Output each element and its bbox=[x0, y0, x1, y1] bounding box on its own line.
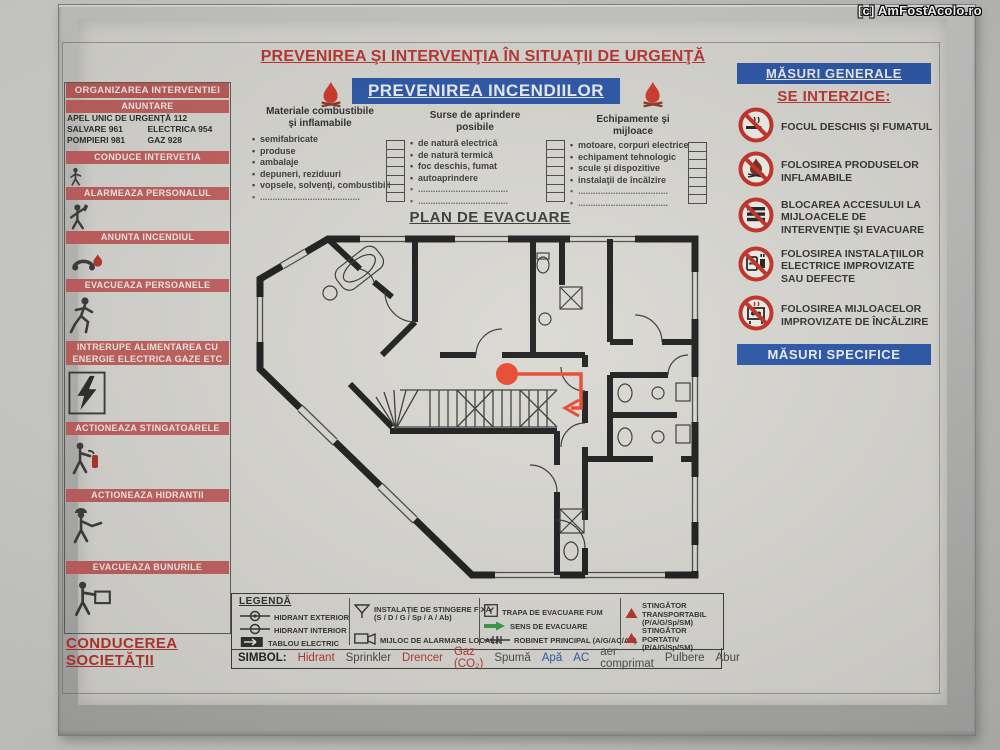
fire-prevention-banner: PREVENIREA INCENDIILOR bbox=[352, 78, 620, 104]
step-bar: EVACUEAZA BUNURILE MATERIALE bbox=[66, 561, 229, 574]
legend-divider bbox=[620, 598, 621, 645]
phone-salvare: SALVARE 961 bbox=[67, 124, 148, 135]
wheeled-extinguisher-icon bbox=[625, 606, 638, 624]
legend-box: LEGENDĂ HIDRANT EXTERIOR HIDRANT INTERIO… bbox=[231, 593, 724, 650]
fixed-extinguishing-icon bbox=[354, 604, 370, 624]
symbol-word: aer comprimat bbox=[600, 646, 654, 670]
symbol-word: Apă bbox=[542, 652, 562, 664]
step-bar: ALARMEAZA PERSONALUL bbox=[66, 187, 229, 200]
step-bar: INTRERUPE ALIMENTAREA CU ENERGIE ELECTRI… bbox=[66, 341, 229, 365]
legend-divider bbox=[349, 598, 350, 645]
phone-gaz: GAZ 928 bbox=[148, 135, 229, 146]
prohibition-item: FOLOSIREA PRODUSELOR INFLAMABILE bbox=[737, 150, 935, 193]
column-title-equipment: Echipamente şi mijloace bbox=[568, 114, 698, 138]
no-flammable-products-icon bbox=[737, 150, 775, 193]
you-are-here-marker bbox=[496, 363, 518, 385]
prohibition-heading: SE INTERZICE: bbox=[737, 88, 931, 105]
step-bar: CONDUCE INTERVETIA bbox=[66, 151, 229, 164]
evacuation-plan-title: PLAN DE EVACUARE bbox=[380, 209, 600, 226]
legend-title: LEGENDĂ bbox=[239, 596, 291, 607]
step-bar: ACTIONEAZA STINGATOARELE bbox=[66, 422, 229, 435]
symbol-word: AC bbox=[573, 652, 589, 664]
emergency-number: APEL UNIC DE URGENŢĂ 112 bbox=[67, 113, 228, 124]
prohibition-item: FOCUL DESCHIS ŞI FUMATUL bbox=[737, 106, 935, 149]
step-bar: ANUNTA INCENDIUL bbox=[66, 231, 229, 244]
flame-icon bbox=[640, 80, 666, 115]
checklist-cells bbox=[546, 140, 565, 202]
legend-item: STINGĂTOR TRANSPORTABIL (P/A/G/Sp/SM) bbox=[625, 602, 723, 628]
company-management-label: CONDUCEREA SOCIETĂŢII bbox=[66, 635, 246, 669]
sidebar-title: ORGANIZAREA INTERVENTIEI bbox=[66, 83, 229, 98]
prohibition-item: FOLOSIREA MIJLOACELOR IMPROVIZATE DE ÎNC… bbox=[737, 294, 935, 337]
no-open-fire-smoking-icon bbox=[737, 106, 775, 149]
legend-divider bbox=[479, 598, 480, 645]
evacuation-floor-plan bbox=[240, 226, 720, 586]
symbol-word: Hidrant bbox=[298, 652, 335, 664]
no-blocking-access-icon bbox=[737, 196, 775, 239]
intervention-organization-panel: ORGANIZAREA INTERVENTIEI ANUNTARE APEL U… bbox=[64, 82, 231, 634]
symbol-word: Abur bbox=[716, 652, 740, 664]
poster-title: PREVENIREA ŞI INTERVENŢIA ÎN SITUAŢII DE… bbox=[240, 48, 726, 66]
no-improvised-heating-icon bbox=[737, 294, 775, 337]
person-carrying-box-icon bbox=[68, 579, 114, 628]
prohibition-item: FOLOSIREA INSTALAŢIILOR ELECTRICE IMPROV… bbox=[737, 245, 935, 288]
step-bar: ACTIONEAZA HIDRANTII bbox=[66, 489, 229, 502]
symbol-word: Sprinkler bbox=[346, 652, 391, 664]
emergency-phone-numbers: APEL UNIC DE URGENŢĂ 112 SALVARE 961 ELE… bbox=[67, 113, 228, 146]
specific-measures-banner: MĂSURI SPECIFICE bbox=[737, 344, 931, 365]
step-bar: EVACUEAZA PERSOANELE bbox=[66, 279, 229, 292]
column-list-equipment: •motoare, corpuri electrice •echipament … bbox=[570, 140, 696, 209]
anuntare-bar: ANUNTARE bbox=[66, 100, 229, 113]
column-title-materials: Materiale combustibile şi inflamabile bbox=[250, 106, 390, 130]
column-list-materials: •semifabricate •produse •ambalaje •depun… bbox=[252, 134, 390, 203]
prohibition-item: BLOCAREA ACCESULUI LA MIJLOACELE DE INTE… bbox=[737, 196, 935, 239]
symbol-word: Pulbere bbox=[665, 652, 705, 664]
symbol-word: Spumă bbox=[494, 652, 530, 664]
general-measures-banner: MĂSURI GENERALE bbox=[737, 63, 931, 84]
checklist-cells bbox=[688, 142, 707, 204]
photo-of-framed-evacuation-poster: [c] AmFostAcolo.ro ORGANIZAREA INTERVENT… bbox=[0, 0, 1000, 750]
checklist-cells bbox=[386, 140, 405, 202]
legend-item: INSTALAŢIE DE STINGERE FIXĂ (S / D / G /… bbox=[354, 604, 491, 624]
person-extinguisher-icon bbox=[68, 440, 108, 487]
column-list-ignition: •de natură electrică •de natură termică … bbox=[410, 138, 542, 207]
watermark: [c] AmFostAcolo.ro bbox=[858, 3, 998, 18]
lightning-icon bbox=[68, 370, 106, 421]
no-improvised-electric-icon bbox=[737, 245, 775, 288]
firefighter-icon bbox=[68, 507, 108, 558]
phone-pompieri: POMPIERI 981 bbox=[67, 135, 148, 146]
phone-electrica: ELECTRICA 954 bbox=[148, 124, 229, 135]
symbol-label: SIMBOL: bbox=[238, 652, 287, 664]
column-title-ignition: Surse de aprindere posibile bbox=[405, 110, 545, 134]
running-person-icon bbox=[68, 295, 102, 342]
symbol-word: Drencer bbox=[402, 652, 443, 664]
symbol-row: SIMBOL: Hidrant Sprinkler Drencer Gaz (C… bbox=[231, 648, 722, 669]
symbol-word: Gaz (CO₂) bbox=[454, 646, 483, 670]
